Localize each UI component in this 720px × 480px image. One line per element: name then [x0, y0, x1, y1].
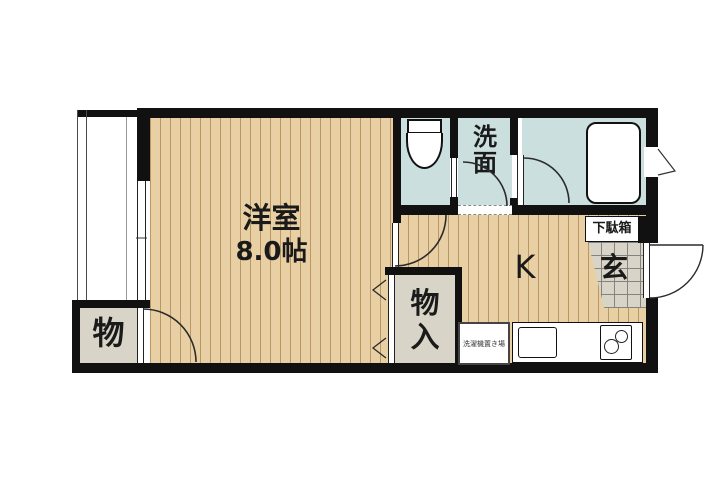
washer-space-label: 洗濯機置き場	[463, 339, 505, 349]
closet-label: 物入	[395, 286, 455, 354]
casement-window-icon	[658, 149, 675, 175]
wall-wet-kitchen	[393, 205, 658, 215]
entrance-label: 玄	[586, 253, 642, 284]
storage-left-wall	[72, 300, 80, 373]
storage-label: 物	[80, 316, 137, 351]
washer-space-box: 洗濯機置き場	[458, 322, 510, 365]
wall-left-upper	[137, 108, 150, 181]
wall-bottom	[72, 363, 658, 373]
closet-top-wall	[385, 267, 462, 275]
sliding-window-icon	[137, 181, 146, 300]
main-room-label: 洋室	[150, 203, 393, 235]
bath-window-gap	[644, 147, 658, 177]
front-door	[643, 243, 650, 298]
toilet-door	[451, 158, 457, 197]
closet-door	[388, 275, 395, 363]
bath-door	[517, 155, 524, 205]
balcony-inner-line	[86, 110, 87, 300]
storage-door	[137, 308, 144, 363]
entrance-stub-wall	[638, 216, 646, 243]
closet-label-text: 物入	[409, 286, 441, 354]
stove-burners-icon	[600, 325, 632, 360]
main-kitchen-door	[392, 223, 399, 267]
floor-plan: 下駄箱 洗濯機置き場 洋室 8.0帖 K 洗面 物 物入 玄	[0, 0, 720, 480]
kitchen-label: K	[495, 250, 555, 285]
shoe-cabinet-label: 下駄箱	[592, 222, 631, 236]
sink-icon	[518, 327, 557, 358]
stove-burner-small	[615, 330, 628, 343]
bathtub-icon	[586, 122, 641, 204]
balcony-top-rail	[78, 110, 140, 117]
washroom-label-text: 洗面	[472, 124, 498, 177]
washroom-label: 洗面	[458, 124, 512, 177]
main-room-size: 8.0帖	[150, 238, 393, 267]
shoe-cabinet-box: 下駄箱	[585, 216, 639, 242]
balcony-outer-line	[77, 110, 78, 300]
toilet-tank	[407, 119, 442, 134]
storage-top-wall	[72, 300, 150, 308]
toilet-wall-upper	[450, 108, 458, 158]
washroom-threshold	[458, 205, 512, 215]
balcony-edge-line	[126, 117, 127, 300]
main-room-label-block: 洋室 8.0帖	[150, 203, 393, 266]
